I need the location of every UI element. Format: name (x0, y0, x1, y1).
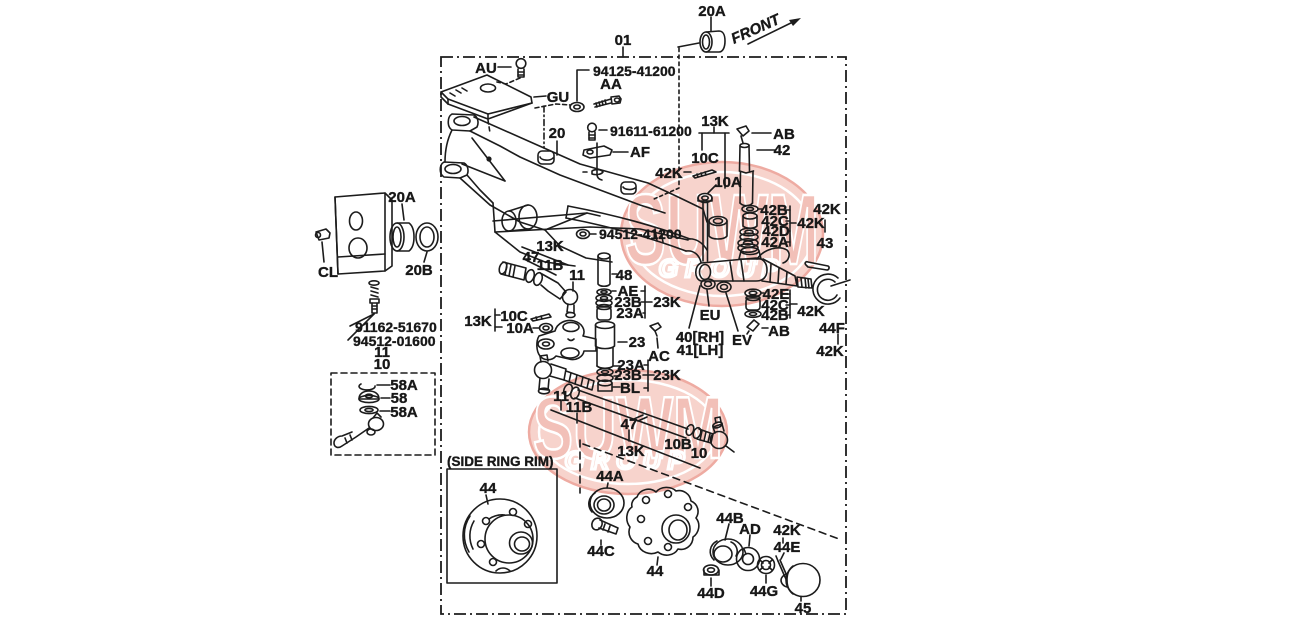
svg-text:(SIDE RING RIM): (SIDE RING RIM) (447, 454, 554, 469)
svg-text:11: 11 (569, 267, 585, 284)
svg-text:AF: AF (630, 144, 650, 161)
svg-text:42A: 42A (761, 234, 789, 251)
svg-text:44: 44 (480, 480, 497, 497)
svg-text:BL: BL (620, 380, 640, 397)
svg-text:GU: GU (547, 89, 570, 106)
svg-text:10C: 10C (691, 150, 719, 167)
svg-text:91611-61200: 91611-61200 (610, 123, 692, 139)
svg-text:23K: 23K (653, 294, 681, 311)
svg-text:AC: AC (648, 348, 670, 365)
svg-text:01: 01 (615, 32, 632, 49)
svg-text:EU: EU (700, 307, 721, 324)
svg-text:13K: 13K (701, 113, 729, 130)
svg-text:44C: 44C (587, 543, 615, 560)
svg-text:20A: 20A (388, 189, 416, 206)
svg-text:20: 20 (549, 125, 566, 142)
svg-text:44: 44 (647, 563, 664, 580)
svg-text:10: 10 (691, 445, 708, 462)
svg-text:EV: EV (732, 332, 752, 349)
svg-text:44A: 44A (596, 468, 624, 485)
svg-text:42K: 42K (773, 522, 801, 539)
svg-text:23K: 23K (653, 367, 681, 384)
svg-text:13K: 13K (464, 313, 492, 330)
svg-text:94512-01600: 94512-01600 (353, 333, 436, 349)
svg-text:20B: 20B (405, 262, 433, 279)
svg-text:45: 45 (795, 600, 812, 617)
svg-text:AA: AA (600, 76, 622, 93)
svg-text:44G: 44G (750, 583, 778, 600)
svg-text:10B: 10B (664, 436, 692, 453)
svg-text:AD: AD (739, 521, 761, 538)
svg-text:42B: 42B (761, 307, 789, 324)
svg-text:42K: 42K (797, 303, 825, 320)
svg-text:44E: 44E (774, 539, 801, 556)
svg-text:10A: 10A (714, 174, 742, 191)
svg-text:10A: 10A (506, 320, 534, 337)
svg-text:23A: 23A (616, 305, 644, 322)
svg-text:58A: 58A (390, 404, 418, 421)
svg-text:48: 48 (616, 267, 633, 284)
svg-text:11B: 11B (537, 257, 564, 274)
svg-text:20A: 20A (698, 3, 726, 20)
svg-text:AU: AU (475, 60, 497, 77)
svg-text:23: 23 (629, 334, 646, 351)
svg-text:13K: 13K (617, 443, 645, 460)
svg-text:43: 43 (817, 235, 834, 252)
svg-text:47: 47 (621, 416, 638, 433)
svg-text:42: 42 (774, 142, 791, 159)
svg-text:44D: 44D (697, 585, 725, 602)
svg-text:42K: 42K (797, 215, 825, 232)
svg-text:42K: 42K (816, 343, 844, 360)
svg-text:10: 10 (374, 356, 391, 373)
svg-text:11B: 11B (566, 399, 593, 416)
svg-text:42K: 42K (655, 165, 683, 182)
svg-text:AB: AB (773, 126, 795, 143)
svg-text:AB: AB (768, 323, 790, 340)
svg-text:44F: 44F (819, 320, 845, 337)
svg-text:CL: CL (318, 264, 338, 281)
svg-text:13K: 13K (536, 238, 564, 255)
svg-text:94512-41200: 94512-41200 (599, 226, 682, 242)
svg-text:41[LH]: 41[LH] (677, 342, 724, 359)
